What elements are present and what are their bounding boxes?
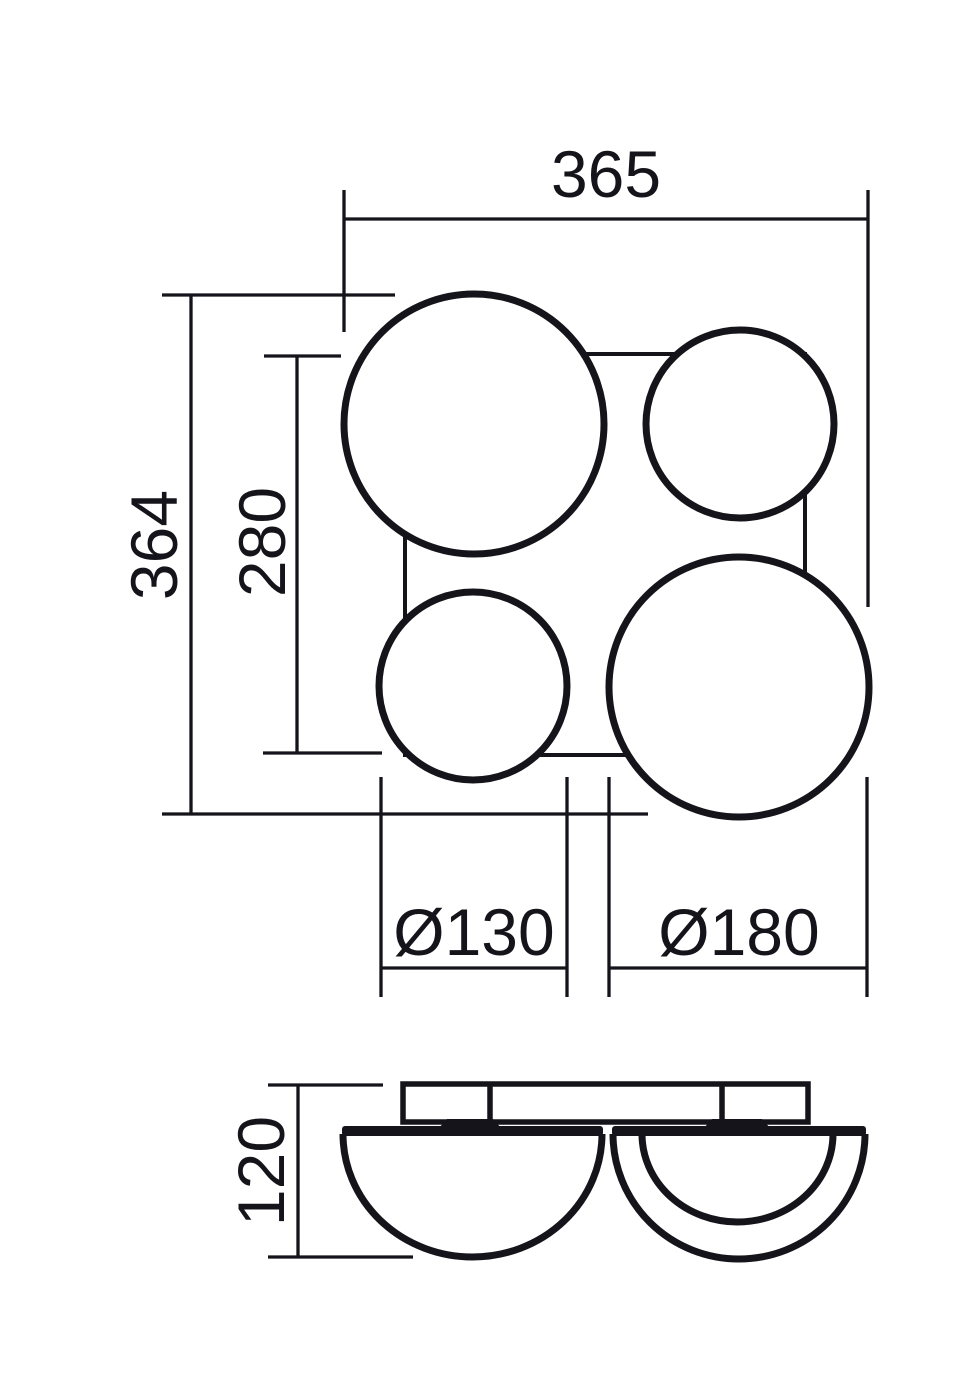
plan-view	[344, 294, 869, 817]
dome-rim-right	[612, 1126, 866, 1136]
dome-bowl-right-inner	[642, 1134, 833, 1222]
mounting-plate-outline	[403, 1084, 808, 1122]
dimension-small-globe-diameter: Ø130	[381, 777, 567, 997]
technical-drawing: 365 364 280 Ø130 Ø180	[0, 0, 980, 1400]
side-view	[342, 1084, 866, 1259]
dim-label-overall-width: 365	[551, 137, 661, 211]
dome-rim-left	[342, 1126, 603, 1136]
dim-label-canopy-size: 280	[225, 487, 299, 597]
globe-large-bottom-right	[609, 557, 869, 817]
dome-bowl-right-outer	[613, 1134, 865, 1259]
globe-small-bottom-left	[379, 592, 567, 780]
globe-large-top-left	[344, 294, 604, 554]
drawing-sheet: 365 364 280 Ø130 Ø180	[0, 0, 980, 1400]
dimension-side-height: 120	[224, 1085, 413, 1257]
dim-label-small-globe-diameter: Ø130	[393, 895, 554, 969]
dim-label-side-height: 120	[224, 1116, 298, 1226]
globe-small-top-right	[646, 330, 834, 518]
dim-label-large-globe-diameter: Ø180	[658, 895, 819, 969]
dome-bowl-left	[343, 1134, 602, 1257]
dim-label-overall-height: 364	[117, 490, 191, 600]
